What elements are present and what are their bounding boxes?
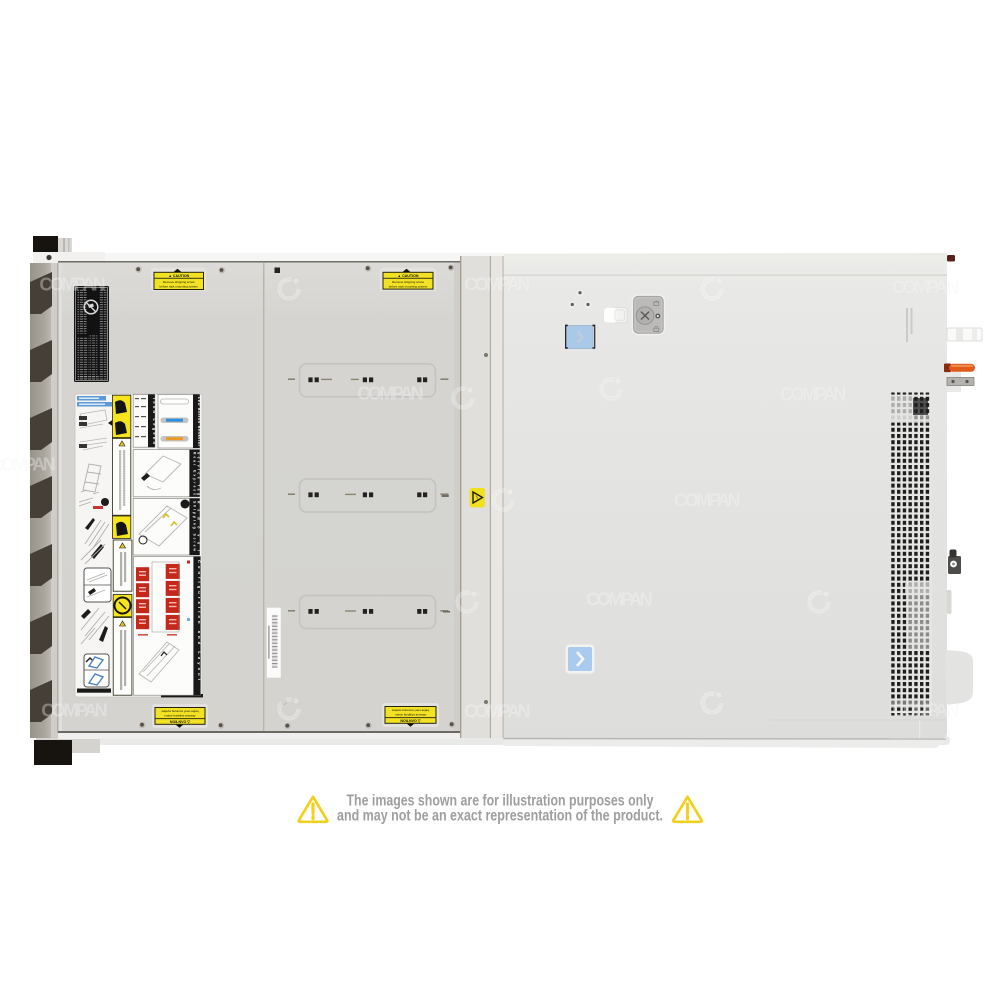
svg-text:Removal: Removal xyxy=(197,501,201,551)
svg-text:NOILNVO ▽: NOILNVO ▽ xyxy=(170,720,191,724)
svg-text:Shipping Screw: Shipping Screw xyxy=(193,501,197,551)
svg-text:▲ CAUTION: ▲ CAUTION xyxy=(398,274,419,278)
svg-text:maios buiddiys anoway: maios buiddiys anoway xyxy=(395,712,427,716)
svg-text:and may not be an exact repres: and may not be an exact representation o… xyxy=(337,808,663,825)
svg-text:maios buiddiys anoway: maios buiddiys anoway xyxy=(164,713,196,717)
svg-text:before rack mounting system: before rack mounting system xyxy=(160,284,199,288)
svg-text:▲ CAUTION: ▲ CAUTION xyxy=(168,274,189,278)
svg-text:Configuration and Layout: Configuration and Layout xyxy=(197,560,202,681)
svg-text:Service Tag: Service Tag xyxy=(197,452,201,495)
svg-text:LED Button Behavior: LED Button Behavior xyxy=(197,397,201,447)
svg-text:wajsAs bulunow yoeu aojaq: wajsAs bulunow yoeu aojaq xyxy=(161,709,198,713)
svg-text:before rack mounting system: before rack mounting system xyxy=(389,284,428,288)
svg-text:NOILNVO ▽: NOILNVO ▽ xyxy=(400,719,421,723)
svg-text:wajsAs bulunow yoeu aojaq: wajsAs bulunow yoeu aojaq xyxy=(392,708,429,712)
